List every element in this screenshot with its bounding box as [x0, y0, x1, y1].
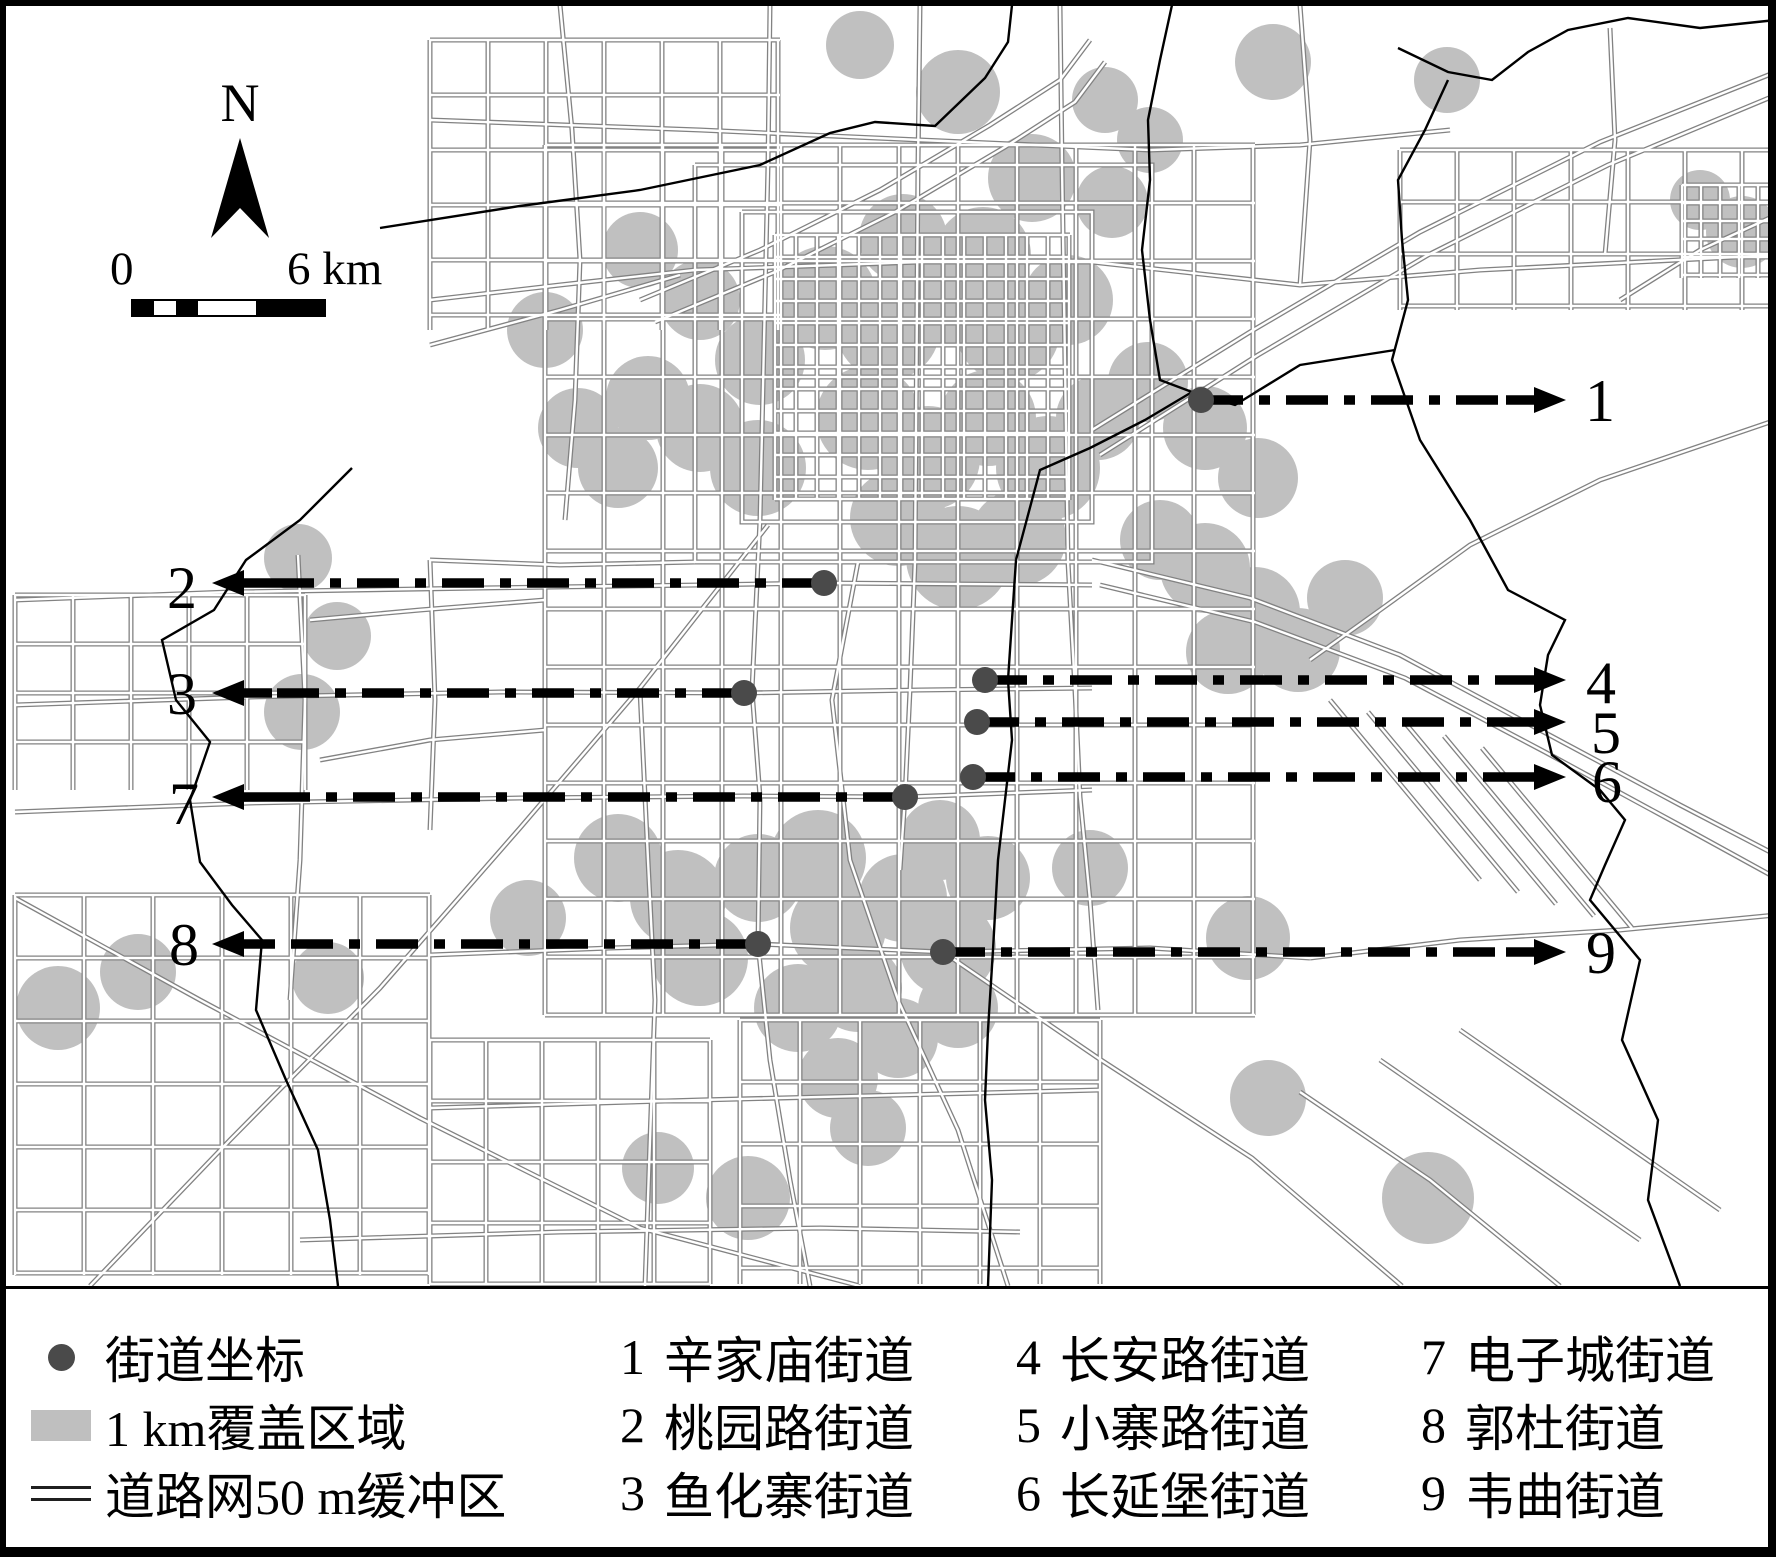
street-arrow-head-icon — [1534, 667, 1566, 693]
legend-street-4: 4 长安路街道 — [1016, 1323, 1310, 1391]
coverage-circle — [916, 50, 1000, 134]
legend-item-label: 1 km覆盖区域 — [105, 1389, 406, 1461]
street-number-label: 8 — [169, 912, 199, 978]
street-marker-5: 5 — [964, 700, 1621, 766]
legend: 街道坐标 1 km覆盖区域 道路网50 m缓冲区 1 辛家庙街道 2 桃园路街道… — [0, 1289, 1776, 1547]
legend-street-9: 9 韦曲街道 — [1421, 1459, 1715, 1527]
coverage-circle — [826, 11, 894, 79]
legend-item-street-coordinate: 街道坐标 — [30, 1323, 506, 1391]
legend-item-road-buffer: 道路网50 m缓冲区 — [30, 1459, 506, 1527]
coverage-circle — [622, 1132, 694, 1204]
scalebar-segment — [133, 301, 154, 315]
legend-street-8: 8 郭杜街道 — [1421, 1391, 1715, 1459]
road-buffer-symbol — [31, 1486, 91, 1501]
street-coordinate-dot — [731, 680, 757, 706]
scalebar-segment — [198, 301, 256, 315]
street-arrow-head-icon — [212, 680, 244, 706]
scalebar-segment — [176, 301, 198, 315]
coverage-circle — [16, 966, 100, 1050]
north-arrow-icon — [211, 138, 269, 238]
street-coordinate-dot — [811, 570, 837, 596]
road — [1330, 700, 1480, 880]
coverage-circle — [100, 934, 176, 1010]
legend-symbol-column: 街道坐标 1 km覆盖区域 道路网50 m缓冲区 — [30, 1323, 506, 1527]
street-coordinate-dot — [964, 709, 990, 735]
street-arrow-head-icon — [1534, 709, 1566, 735]
legend-street-5: 5 小寨路街道 — [1016, 1391, 1310, 1459]
street-number-label: 3 — [167, 661, 197, 727]
road — [1460, 1030, 1720, 1210]
road — [943, 952, 1402, 1286]
street-coordinate-dot — [972, 667, 998, 693]
legend-street-6: 6 长延堡街道 — [1016, 1459, 1310, 1527]
coverage-circle — [1230, 1060, 1306, 1136]
legend-street-1: 1 辛家庙街道 — [620, 1323, 914, 1391]
road — [1310, 420, 1776, 660]
coverage-circle — [1206, 896, 1290, 980]
street-number-label: 1 — [1585, 368, 1615, 434]
legend-street-7: 7 电子城街道 — [1421, 1323, 1715, 1391]
legend-item-label: 道路网50 m缓冲区 — [105, 1457, 506, 1529]
street-arrow-head-icon — [1534, 764, 1566, 790]
north-arrow: N — [205, 76, 275, 238]
street-arrow-head-icon — [212, 931, 244, 957]
coverage-circle — [830, 1090, 906, 1166]
coverage-circle — [1218, 438, 1298, 518]
scalebar-segment — [256, 301, 324, 315]
street-coordinate-dot — [745, 931, 771, 957]
road — [1368, 712, 1518, 892]
street-number-label: 2 — [167, 555, 197, 621]
legend-street-3: 3 鱼化寨街道 — [620, 1459, 914, 1527]
street-number-label: 7 — [169, 771, 199, 837]
legend-street-column-1: 1 辛家庙街道 2 桃园路街道 3 鱼化寨街道 — [620, 1323, 914, 1527]
coverage-circle — [303, 602, 371, 670]
scalebar-max-label: 6 km — [287, 242, 382, 296]
street-coordinate-dot — [930, 939, 956, 965]
street-coordinate-dot — [1188, 387, 1214, 413]
street-coordinate-dot — [892, 784, 918, 810]
street-number-label: 6 — [1592, 749, 1622, 815]
scalebar-segment — [154, 301, 176, 315]
scalebar-zero-label: 0 — [110, 242, 134, 296]
road — [1310, 420, 1776, 660]
legend-item-label: 街道坐标 — [105, 1321, 305, 1393]
street-number-label: 9 — [1586, 920, 1616, 986]
road — [1444, 736, 1594, 916]
street-arrow-head-icon — [1534, 939, 1566, 965]
legend-street-column-3: 7 电子城街道 8 郭杜街道 9 韦曲街道 — [1421, 1323, 1715, 1527]
figure-street-coverage-map: 123456789 N 0 6 km 街道坐标 1 km覆盖区域 道路网50 m… — [0, 0, 1776, 1557]
legend-street-column-2: 4 长安路街道 5 小寨路街道 6 长延堡街道 — [1016, 1323, 1310, 1527]
street-coordinate-dot — [960, 764, 986, 790]
scalebar — [131, 299, 326, 317]
coverage-circle — [1382, 1152, 1474, 1244]
north-label: N — [205, 76, 275, 130]
coverage-circle — [292, 942, 364, 1014]
coverage-circle — [606, 356, 690, 440]
coverage-area-symbol — [31, 1410, 91, 1441]
map-legend-divider — [0, 1286, 1776, 1289]
legend-street-2: 2 桃园路街道 — [620, 1391, 914, 1459]
street-dot-symbol — [48, 1344, 75, 1371]
road — [1406, 724, 1556, 904]
legend-item-coverage-area: 1 km覆盖区域 — [30, 1391, 506, 1459]
street-arrow-head-icon — [1534, 387, 1566, 413]
coverage-circle — [1235, 24, 1311, 100]
